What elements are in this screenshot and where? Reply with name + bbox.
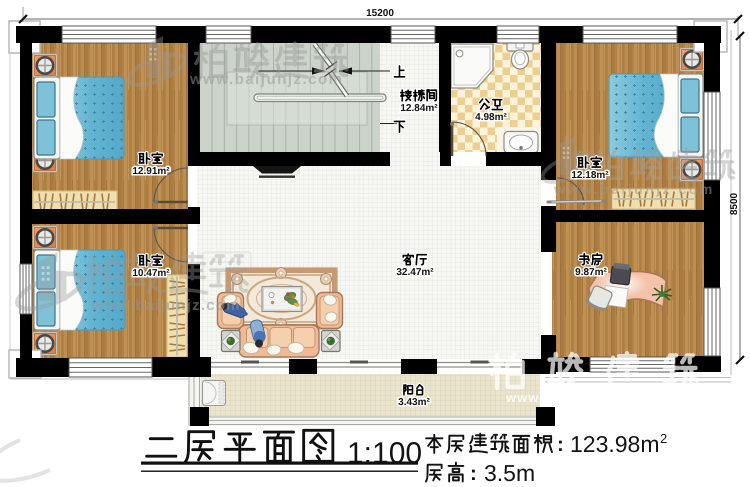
svg-text:3.43m²: 3.43m² (398, 397, 430, 408)
svg-text:123.98m: 123.98m (570, 431, 660, 457)
svg-text:www.baijunjz.com: www.baijunjz.com (91, 297, 241, 314)
svg-text:12.84m²: 12.84m² (400, 103, 438, 114)
svg-text::: : (470, 462, 477, 485)
svg-text:9.87m²: 9.87m² (575, 267, 607, 278)
svg-text:4.98m²: 4.98m² (475, 112, 507, 123)
svg-text:www.baijunjz.com: www.baijunjz.com (189, 71, 343, 88)
svg-text:12.91m²: 12.91m² (132, 166, 170, 177)
svg-text::: : (557, 433, 564, 456)
svg-text:www.baijunjz.com: www.baijunjz.com (553, 181, 715, 197)
svg-text:www.baijunjz.com: www.baijunjz.com (505, 390, 634, 405)
svg-text:12.18m²: 12.18m² (571, 170, 609, 181)
svg-text:8500: 8500 (729, 192, 740, 215)
svg-text:3.5m: 3.5m (484, 460, 535, 486)
svg-text:32.47m²: 32.47m² (396, 267, 434, 278)
svg-text:2: 2 (660, 431, 667, 446)
svg-text:15200: 15200 (366, 8, 394, 19)
svg-text:10.47m²: 10.47m² (132, 268, 170, 279)
svg-text:1:100: 1:100 (347, 437, 422, 470)
